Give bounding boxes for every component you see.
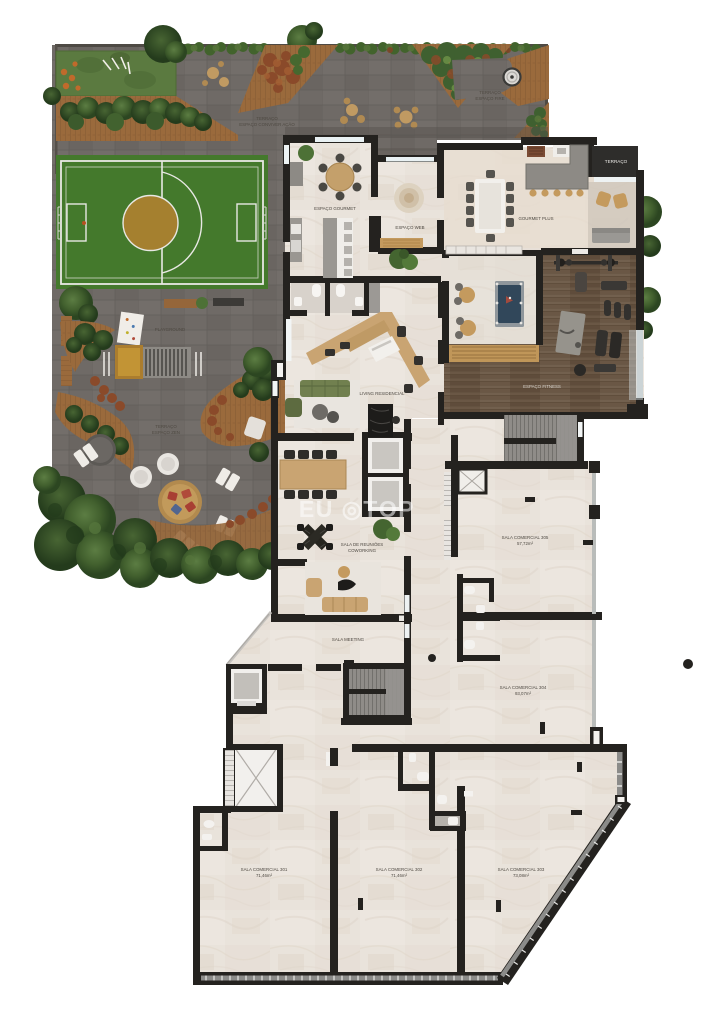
svg-text:SALA DE REUNIÕES: SALA DE REUNIÕES	[341, 542, 384, 547]
svg-text:TERRAÇO: TERRAÇO	[605, 159, 628, 164]
svg-text:SALA COMERCIAL 302: SALA COMERCIAL 302	[376, 867, 423, 872]
svg-text:TERRAÇO: TERRAÇO	[155, 424, 177, 429]
svg-text:57,72m²: 57,72m²	[517, 541, 534, 546]
svg-text:73,08m²: 73,08m²	[513, 873, 530, 878]
svg-text:LIVING RESIDENCIAL: LIVING RESIDENCIAL	[360, 391, 405, 396]
svg-text:PLAYGROUND: PLAYGROUND	[155, 327, 185, 332]
svg-text:SALA COMERCIAL 304: SALA COMERCIAL 304	[500, 685, 547, 690]
svg-text:ESPAÇO FIRE: ESPAÇO FIRE	[475, 96, 504, 101]
svg-text:SALA COMERCIAL 305: SALA COMERCIAL 305	[502, 535, 549, 540]
svg-text:ESPAÇO GOURMET: ESPAÇO GOURMET	[314, 206, 356, 211]
svg-text:93,07m²: 93,07m²	[515, 691, 532, 696]
svg-text:TERRAÇO: TERRAÇO	[479, 90, 501, 95]
svg-text:SALA MEETING: SALA MEETING	[332, 637, 365, 642]
svg-text:SALA COMERCIAL 303: SALA COMERCIAL 303	[498, 867, 545, 872]
svg-text:ESPAÇO ZEN: ESPAÇO ZEN	[152, 430, 180, 435]
svg-text:SALA COMERCIAL 301: SALA COMERCIAL 301	[241, 867, 288, 872]
svg-text:EU ◎TОP: EU ◎TОP	[299, 496, 415, 522]
svg-text:ESPAÇO FITNESS: ESPAÇO FITNESS	[523, 384, 561, 389]
svg-text:71,46m²: 71,46m²	[391, 873, 408, 878]
svg-text:ESPAÇO WEB: ESPAÇO WEB	[395, 225, 424, 230]
svg-text:71,46m²: 71,46m²	[256, 873, 273, 878]
svg-text:COWORKING: COWORKING	[348, 548, 377, 553]
svg-text:GOURMET PLUS: GOURMET PLUS	[518, 216, 553, 221]
svg-text:ESPAÇO CONVIVER AÇÃO: ESPAÇO CONVIVER AÇÃO	[239, 122, 295, 127]
svg-text:TERRAÇO: TERRAÇO	[256, 116, 278, 121]
